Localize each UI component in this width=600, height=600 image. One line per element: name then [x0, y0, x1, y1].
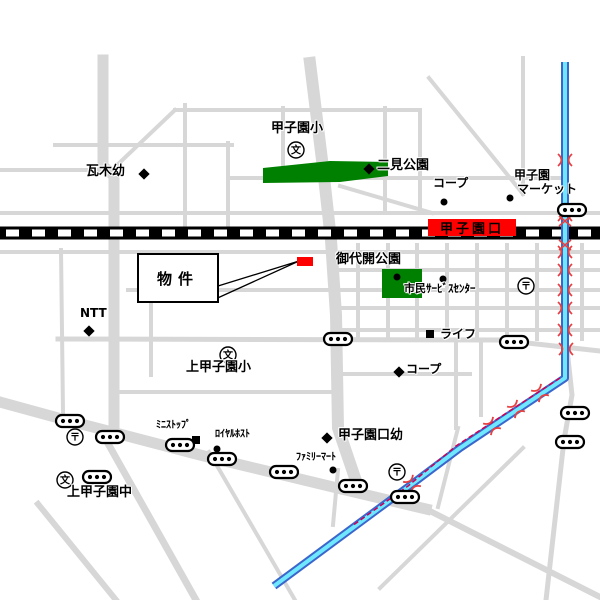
label-miyobiraki-park: 御代開公園 [336, 253, 401, 267]
post-office-icon: 〒 [67, 429, 83, 445]
bus-stop-icon [56, 415, 84, 427]
post-office-icon: 〒 [389, 464, 405, 480]
bus-stop-icon [270, 466, 298, 478]
road [114, 110, 175, 168]
school-icon: 文 [288, 142, 304, 158]
bus-stop-icon [391, 491, 419, 503]
bus-stop-icon [166, 439, 194, 451]
post-office-icon-glyph: 〒 [521, 281, 531, 293]
kawaragi-kindergarten-marker [138, 168, 149, 179]
bus-stop-icon [324, 333, 352, 345]
bus-stop-icon [500, 336, 528, 348]
label-futami-park: 二見公園 [377, 159, 429, 173]
label-ntt: NTT [80, 306, 107, 320]
koshien-market-marker [507, 195, 514, 202]
bridges-layer [403, 154, 573, 493]
road [426, 509, 600, 597]
label-koshien-market-line1: 甲子園 [514, 168, 550, 182]
station-label-koshienguchi: 甲子園口 [428, 219, 516, 236]
road [333, 470, 338, 525]
coop-north-marker [441, 199, 448, 206]
koshienguchi-kindergarten-marker [321, 432, 332, 443]
family-mart-marker [330, 467, 337, 474]
life-marker [426, 330, 434, 338]
post-office-icon-glyph: 〒 [70, 432, 80, 444]
property-pointer-lines [211, 261, 299, 301]
label-ministop: ﾐﾆｽﾄｯﾌﾟ [156, 419, 191, 433]
property-marker [297, 257, 313, 266]
road [438, 428, 458, 507]
royal-host-marker [214, 446, 221, 453]
bus-stop-icon [96, 431, 124, 443]
label-life: ライフ [440, 327, 476, 341]
road [106, 440, 196, 600]
label-civic-service-center: 市民ｻｰﾋﾞｽｾﾝﾀｰ [404, 282, 476, 296]
road [61, 250, 63, 413]
map: 文 文 文 〒 〒 〒 [0, 0, 600, 600]
post-office-icon-glyph: 〒 [392, 467, 402, 479]
label-coop-south: コープ [406, 362, 441, 376]
bus-stop-icon [339, 480, 367, 492]
label-royal-host: ﾛｲﾔﾙﾎｽﾄ [215, 428, 250, 442]
label-coop-north: コープ [433, 176, 468, 190]
bus-stop-icon [208, 453, 236, 465]
road [38, 504, 116, 600]
label-kawaragi-kindergarten: 瓦木幼 [86, 165, 125, 179]
post-office-icon: 〒 [518, 278, 534, 294]
label-koshienguchi-kindergarten: 甲子園口幼 [338, 429, 403, 443]
label-koshien-elementary: 甲子園小 [271, 122, 323, 136]
school-icon-glyph: 文 [291, 144, 302, 157]
label-kami-koshien-elementary: 上甲子園小 [186, 361, 251, 375]
label-kami-koshien-junior-high: 上甲子園中 [67, 486, 132, 500]
bus-stop-icon [556, 436, 584, 448]
bus-stop-icon [561, 407, 589, 419]
property-callout-box: 物件 [137, 253, 219, 303]
miyobiraki-park-marker [394, 274, 401, 281]
bus-stop-icon [558, 204, 586, 216]
ntt-marker [83, 325, 94, 336]
map-canvas: 文 文 文 〒 〒 〒 [0, 0, 600, 600]
label-family-mart: ﾌｧﾐﾘｰﾏｰﾄ [296, 451, 336, 465]
label-koshien-market-line2: マーケット [517, 182, 577, 196]
road [103, 60, 114, 438]
bus-stop-icon [83, 471, 111, 483]
